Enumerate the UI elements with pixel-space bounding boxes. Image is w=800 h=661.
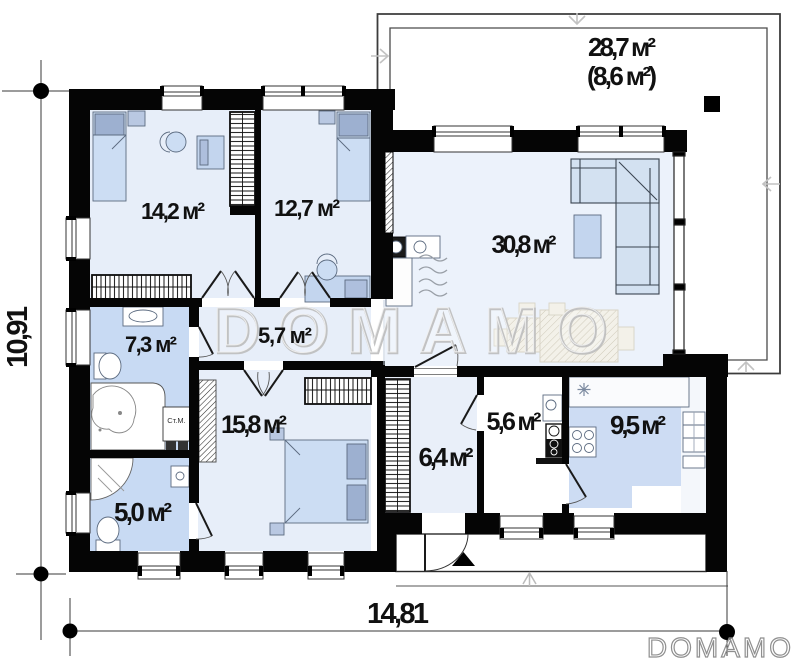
svg-text:30,8 м²: 30,8 м² <box>492 231 557 259</box>
svg-text:(8,6 м²): (8,6 м²) <box>587 61 657 91</box>
svg-text:DOMAMO: DOMAMO <box>647 632 794 661</box>
svg-text:28,7 м²: 28,7 м² <box>588 32 656 62</box>
svg-text:6,4 м²: 6,4 м² <box>419 442 474 472</box>
svg-text:7,3 м²: 7,3 м² <box>125 332 177 357</box>
svg-text:10,91: 10,91 <box>2 306 34 368</box>
svg-text:15,8 м²: 15,8 м² <box>221 411 287 439</box>
svg-text:5,7 м²: 5,7 м² <box>258 323 312 348</box>
svg-text:5,0 м²: 5,0 м² <box>114 497 172 527</box>
svg-text:14,81: 14,81 <box>367 598 429 630</box>
svg-text:Ст.М.: Ст.М. <box>167 416 185 425</box>
svg-text:14,2 м²: 14,2 м² <box>141 198 205 224</box>
svg-text:12,7 м²: 12,7 м² <box>274 195 340 221</box>
svg-text:9,5 м²: 9,5 м² <box>610 410 666 440</box>
svg-text:5,6 м²: 5,6 м² <box>487 408 542 436</box>
